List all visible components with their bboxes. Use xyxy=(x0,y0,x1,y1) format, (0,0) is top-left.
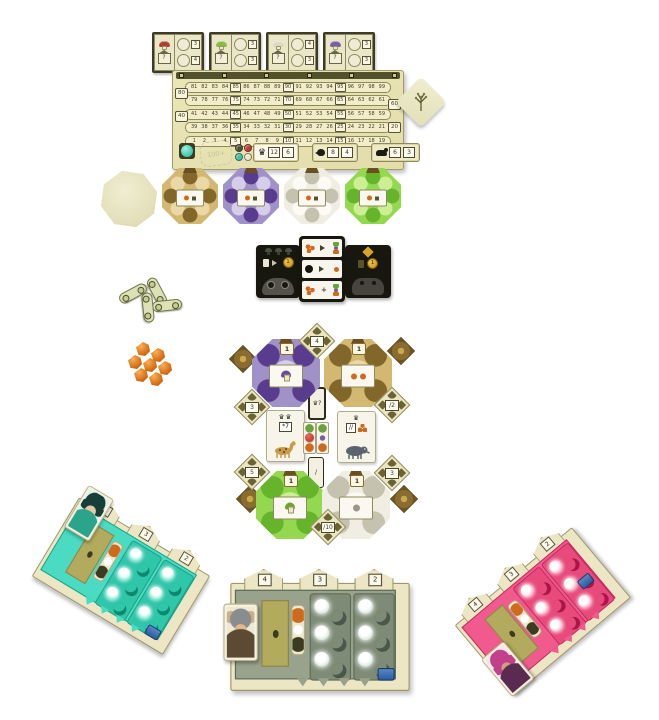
track-space: 57 xyxy=(356,110,366,119)
track-space: 55 xyxy=(335,110,346,119)
forest-tile-gold[interactable] xyxy=(162,168,218,224)
player-score-token[interactable] xyxy=(244,144,252,152)
peg xyxy=(392,73,397,78)
track-space: 44 xyxy=(220,110,230,119)
board-top-strip xyxy=(176,72,400,79)
crown-icon: ♛ xyxy=(258,148,266,158)
track-space: 85 xyxy=(230,83,241,92)
reward-row: // xyxy=(346,423,367,433)
scoring-value: 3 xyxy=(403,147,415,158)
goal-tile[interactable]: ?43 xyxy=(266,32,318,73)
track-space: 63 xyxy=(356,96,366,105)
glass-orb[interactable] xyxy=(147,584,164,601)
animal-mission-card[interactable]: ♛ // xyxy=(337,411,376,463)
goal-slot-circle xyxy=(177,38,190,51)
goal-slot-circle xyxy=(348,54,361,67)
goal-tiles-row: ?34?33?43?33 xyxy=(152,32,375,73)
colored-dots-icon xyxy=(333,284,339,296)
track-space: 35 xyxy=(230,123,241,132)
den-right-panel: 1 xyxy=(345,245,391,298)
glass-orb[interactable] xyxy=(547,558,565,576)
mystery-house-icon: ? xyxy=(329,53,342,64)
scoring-reference-panel: 84 xyxy=(312,143,358,162)
black-disc-icon xyxy=(305,265,313,273)
track-space: 45 xyxy=(230,110,241,119)
track-space: 56 xyxy=(346,110,356,119)
boar-illustration xyxy=(341,441,373,459)
track-space: 59 xyxy=(377,110,387,119)
tower-number: 3 xyxy=(313,574,327,587)
track-space: 66 xyxy=(324,96,334,105)
crown-icon: ♛ xyxy=(353,414,360,422)
gauge-strip xyxy=(291,605,305,656)
diamond-face: /10 xyxy=(316,515,340,539)
amber-crystal-token[interactable] xyxy=(158,361,172,375)
beetle-icon xyxy=(86,550,94,558)
tile-card xyxy=(273,497,307,520)
card-icon xyxy=(263,259,269,267)
glass-orb[interactable] xyxy=(358,599,373,614)
orange-dot-icon xyxy=(184,196,189,201)
track-space: 79 xyxy=(189,96,199,105)
goal-slot: 4 xyxy=(177,54,202,67)
orange-dot-icon xyxy=(334,267,339,272)
crescent-slot xyxy=(123,581,140,598)
tile-cap xyxy=(366,168,380,173)
track-space: 94 xyxy=(324,83,334,92)
goal-requirement: ? xyxy=(268,34,289,71)
glass-orb[interactable] xyxy=(314,599,329,614)
goal-slots: 33 xyxy=(346,34,373,71)
orange-dot-icon xyxy=(367,196,372,201)
coin-icon: 1 xyxy=(283,257,294,268)
goal-slot-circle xyxy=(291,54,304,67)
dark-square-icon xyxy=(314,196,318,200)
tile-cap xyxy=(183,168,197,173)
reward-row: *7 xyxy=(279,422,292,432)
goal-slot: 3 xyxy=(177,38,202,51)
track-space: 22 xyxy=(366,123,376,132)
mystery-house-icon: ? xyxy=(215,53,228,64)
glass-orb[interactable] xyxy=(136,604,153,621)
track-space: 89 xyxy=(272,83,282,92)
orange-dots-icon xyxy=(305,244,315,253)
den-reward-row: 1 xyxy=(358,258,378,269)
antler-chief-portrait xyxy=(227,607,255,658)
score-board: 8182838485868788899091929394959697989979… xyxy=(172,70,404,170)
goal-slot: 3 xyxy=(234,38,259,51)
track-space: 24 xyxy=(346,123,356,132)
track-space: 71 xyxy=(272,96,282,105)
goal-requirement: ? xyxy=(211,34,232,71)
gem-icon xyxy=(362,246,373,257)
goal-slot-circle xyxy=(234,54,247,67)
track-space: 88 xyxy=(262,83,272,92)
player-score-token[interactable] xyxy=(235,144,243,152)
track-space: 29 xyxy=(294,123,304,132)
track-space: 62 xyxy=(366,96,376,105)
diamond-value: /2 xyxy=(385,400,399,411)
glass-orb[interactable] xyxy=(104,584,121,601)
track-space: 52 xyxy=(304,110,314,119)
track-space: 41 xyxy=(189,110,199,119)
diamond-value: 4 xyxy=(310,336,324,347)
board-tooth xyxy=(297,678,309,686)
chain-link-token[interactable] xyxy=(152,298,183,312)
track-space: 28 xyxy=(304,123,314,132)
scoring-value: 6 xyxy=(389,147,401,158)
glass-orb[interactable] xyxy=(314,652,329,667)
plus-icon: + xyxy=(321,286,327,294)
score-track-row: 79787776757473727170696867666564636261 xyxy=(185,95,391,106)
orange-dots-icon xyxy=(351,373,357,379)
card-icon xyxy=(358,260,364,268)
orange-dots-icon xyxy=(358,424,367,432)
crescent-slot xyxy=(536,580,554,598)
peg xyxy=(264,73,269,78)
reward-tag: // xyxy=(346,423,356,433)
track-space: 72 xyxy=(262,96,272,105)
track-space: 34 xyxy=(241,123,251,132)
colored-dots-icon xyxy=(333,242,339,254)
sheep-icon xyxy=(376,150,387,156)
score-track: 8182838485868788899091929394959697989979… xyxy=(185,82,391,147)
board-tooth xyxy=(318,678,330,686)
gray-dot-icon xyxy=(353,505,360,512)
glass-orb[interactable] xyxy=(115,565,132,582)
track-space: 69 xyxy=(294,96,304,105)
arrow-icon xyxy=(272,260,280,266)
player-score-token[interactable] xyxy=(235,153,243,161)
glass-orb[interactable] xyxy=(127,546,144,563)
arrow-icon xyxy=(319,266,327,272)
track-space: 30 xyxy=(283,123,294,132)
forest-tile-row xyxy=(162,168,401,224)
goal-slots: 34 xyxy=(175,34,202,71)
track-space: 54 xyxy=(324,110,334,119)
diamond-value: 3 xyxy=(385,468,399,479)
slot-panel xyxy=(310,593,351,680)
tile-card xyxy=(341,365,375,388)
crown-icons: ♛♛ xyxy=(279,413,293,421)
goal-slot-value: 3 xyxy=(191,40,200,49)
glass-orb[interactable] xyxy=(561,575,579,593)
track-space: 58 xyxy=(366,110,376,119)
mushroom-silhouette-icon xyxy=(265,248,272,255)
goal-requirement: ? xyxy=(154,34,175,71)
track-space: 21 xyxy=(377,123,387,132)
glass-orb[interactable] xyxy=(533,599,551,617)
glass-orb[interactable] xyxy=(314,625,329,640)
tile-card xyxy=(359,190,387,207)
goal-slot-value: 3 xyxy=(248,56,257,65)
goal-slot-circle xyxy=(177,54,190,67)
crescent-slot xyxy=(155,600,172,617)
dark-square-icon xyxy=(192,196,196,200)
goal-tile[interactable]: ?33 xyxy=(209,32,261,73)
score-marker-disc[interactable] xyxy=(181,145,193,157)
crescent-slot xyxy=(332,610,347,625)
forest-tile-green[interactable] xyxy=(345,168,401,224)
tile-card xyxy=(339,497,373,520)
goal-slot-value: 3 xyxy=(305,56,314,65)
beetle-icon xyxy=(272,629,278,637)
owl-face xyxy=(262,278,294,295)
scoring-reference-panels: ♛1268463 xyxy=(253,143,420,162)
den-card-column: + xyxy=(299,236,345,302)
arrow-icon xyxy=(320,245,328,251)
scoring-reference-panel: 63 xyxy=(371,143,420,162)
diamond-value: /10 xyxy=(321,522,335,533)
goal-slots: 43 xyxy=(289,34,316,71)
track-space: 64 xyxy=(346,96,356,105)
track-space: 91 xyxy=(294,83,304,92)
track-space: 77 xyxy=(210,96,220,105)
coin-icon: 1 xyxy=(367,258,378,269)
track-space: 31 xyxy=(272,123,282,132)
crescent-slot xyxy=(375,637,390,652)
peg xyxy=(222,73,227,78)
goal-slot: 3 xyxy=(234,54,259,67)
track-space: 37 xyxy=(210,123,220,132)
hundred-plus-stamp: 100+ xyxy=(199,139,234,168)
goal-slot: 3 xyxy=(291,54,316,67)
board-body xyxy=(235,590,396,680)
track-space: 23 xyxy=(356,123,366,132)
track-space: 67 xyxy=(314,96,324,105)
goal-tile[interactable]: ?34 xyxy=(152,32,204,73)
crescent-slot xyxy=(332,663,347,678)
tower-number: 2 xyxy=(368,574,382,587)
red-round-token[interactable] xyxy=(305,433,314,442)
goal-slot-circle xyxy=(234,38,247,51)
value-diamond[interactable]: /2 xyxy=(374,387,411,424)
track-space: 76 xyxy=(220,96,230,105)
player-board-pink: 432 xyxy=(447,518,631,696)
tile-number-badge: 1 xyxy=(350,475,364,487)
track-space: 38 xyxy=(199,123,209,132)
crescent-slot xyxy=(550,597,568,615)
track-space: 27 xyxy=(314,123,324,132)
dark-square-icon xyxy=(375,196,379,200)
diamond-face: 3 xyxy=(380,461,404,485)
track-space: 83 xyxy=(210,83,220,92)
scoring-reference-panel: ♛126 xyxy=(253,143,299,162)
glass-orb[interactable] xyxy=(576,592,594,610)
beetle-icon xyxy=(508,630,516,638)
scoring-value: 6 xyxy=(282,147,294,158)
crescent-slot xyxy=(111,600,128,617)
track-space: 65 xyxy=(335,96,346,105)
den-left-panel: 1 xyxy=(256,245,300,298)
track-space: 95 xyxy=(335,83,346,92)
track-space: 96 xyxy=(346,83,356,92)
goal-slot-value: 3 xyxy=(248,40,257,49)
track-space: 49 xyxy=(272,110,282,119)
track-space: 93 xyxy=(314,83,324,92)
mystery-house-icon: ? xyxy=(158,53,171,64)
den-card[interactable]: + xyxy=(302,281,342,299)
track-space: 51 xyxy=(294,110,304,119)
goal-tile[interactable]: ?33 xyxy=(323,32,375,73)
track-space: 61 xyxy=(377,96,387,105)
orange-dots-icon xyxy=(305,286,315,295)
track-space: 36 xyxy=(220,123,230,132)
glass-orb[interactable] xyxy=(547,616,565,634)
forest-tile-white[interactable] xyxy=(284,168,340,224)
goal-slot-value: 4 xyxy=(191,56,200,65)
den-reward-row: 1 xyxy=(263,257,294,268)
track-space: 84 xyxy=(220,83,230,92)
purple-mushroom-icon xyxy=(330,41,341,50)
track-space: 74 xyxy=(241,96,251,105)
goal-slot-value: 3 xyxy=(362,40,371,49)
bonus-strip-card[interactable] xyxy=(316,422,329,454)
track-space: 32 xyxy=(262,123,272,132)
score-marker-frame xyxy=(179,143,195,159)
goal-slot: 3 xyxy=(348,54,373,67)
game-table: ?34?33?43?33 818283848586878889909192939… xyxy=(0,0,659,720)
amber-crystal-token[interactable] xyxy=(136,342,150,356)
player-score-token[interactable] xyxy=(244,153,252,161)
goal-slot-value: 3 xyxy=(362,56,371,65)
purple-mushroom-icon xyxy=(281,371,291,382)
diamond-face: 5 xyxy=(240,460,264,484)
score-track-row: 39383736353433323130292827262524232221 xyxy=(185,122,391,133)
track-space: 97 xyxy=(356,83,366,92)
orange-dot-icon xyxy=(245,196,250,201)
crescent-slot xyxy=(564,556,582,574)
diamond-value: 5 xyxy=(245,467,259,478)
tree-die[interactable] xyxy=(396,77,447,128)
bear-face xyxy=(352,278,384,295)
track-space: 26 xyxy=(324,123,334,132)
track-space: 86 xyxy=(241,83,251,92)
red-mushroom-icon xyxy=(159,41,170,50)
scoring-value: 8 xyxy=(327,147,339,158)
track-space: 48 xyxy=(262,110,272,119)
bird-icon xyxy=(317,149,325,156)
goal-slot-circle xyxy=(348,38,361,51)
player-board-teal: 432 xyxy=(32,487,217,655)
blank-octagon-tile[interactable] xyxy=(99,169,160,230)
track-space: 25 xyxy=(335,123,346,132)
track-space: 99 xyxy=(377,83,387,92)
goal-slots: 33 xyxy=(232,34,259,71)
tile-card xyxy=(176,190,204,207)
peg xyxy=(349,73,354,78)
player-token-cluster xyxy=(235,144,254,161)
peg xyxy=(307,73,312,78)
glass-orb[interactable] xyxy=(159,565,176,582)
diamond-face: 4 xyxy=(305,329,329,353)
tree-icon xyxy=(403,84,439,120)
mushroom-silhouette-icon xyxy=(275,248,282,255)
green-mushroom-icon xyxy=(285,503,295,514)
tile-card xyxy=(269,365,303,388)
crescent-slot xyxy=(332,637,347,652)
track-space: 43 xyxy=(210,110,220,119)
goal-slot: 3 xyxy=(348,38,373,51)
tile-card xyxy=(298,190,326,207)
track-space: 68 xyxy=(304,96,314,105)
tile-cap xyxy=(244,168,258,173)
peg xyxy=(179,73,184,78)
track-space: 78 xyxy=(199,96,209,105)
glass-orb[interactable] xyxy=(358,652,373,667)
track-space: 70 xyxy=(283,96,294,105)
study-panel xyxy=(261,600,289,667)
character-card[interactable] xyxy=(223,604,257,662)
den-card[interactable] xyxy=(302,239,342,257)
track-space: 81 xyxy=(189,83,199,92)
amber-crystal-token[interactable] xyxy=(149,372,163,386)
track-space: 92 xyxy=(304,83,314,92)
crescent-slot xyxy=(166,581,183,598)
diamond-face: /2 xyxy=(380,393,404,417)
score-track-row: 81828384858687888990919293949596979899 xyxy=(185,82,391,93)
tile-cap xyxy=(305,168,319,173)
board-tooth xyxy=(338,678,350,686)
track-space: 73 xyxy=(252,96,262,105)
goal-slot-value: 4 xyxy=(305,40,314,49)
tile-card xyxy=(237,190,265,207)
track-space: 75 xyxy=(230,96,241,105)
track-space: 39 xyxy=(189,123,199,132)
animal-mission-card[interactable]: ♛♛ *7 xyxy=(266,410,305,462)
forest-tile-purple[interactable] xyxy=(223,168,279,224)
board-tooth xyxy=(359,678,371,686)
track-space: 33 xyxy=(252,123,262,132)
diamond-value: 3 xyxy=(245,402,259,413)
track-space: 47 xyxy=(252,110,262,119)
orange-dot-icon xyxy=(306,196,311,201)
crescent-slot xyxy=(134,562,151,579)
den-card[interactable] xyxy=(302,260,342,278)
glass-orb[interactable] xyxy=(358,625,373,640)
player-board-olive: 432 xyxy=(230,569,409,691)
track-space: 87 xyxy=(252,83,262,92)
okapi-illustration xyxy=(270,440,302,458)
glass-orb[interactable] xyxy=(518,582,536,600)
reward-tag: *7 xyxy=(279,422,292,432)
amber-crystal-token[interactable] xyxy=(128,355,142,369)
white-mushroom-icon xyxy=(273,41,284,50)
diamond-face: 3 xyxy=(240,395,264,419)
goal-slot: 4 xyxy=(291,38,316,51)
blue-chip[interactable] xyxy=(378,668,395,681)
scoring-value: 12 xyxy=(268,147,280,158)
track-space: 90 xyxy=(283,83,294,92)
track-space: 50 xyxy=(283,110,294,119)
track-space: 98 xyxy=(366,83,376,92)
dark-square-icon xyxy=(253,196,257,200)
score-track-row: 41424344454647484950515253545556575859 xyxy=(185,109,391,120)
mystery-house-icon: ? xyxy=(272,53,285,64)
tile-number-badge: 1 xyxy=(280,343,294,355)
crescent-slot xyxy=(375,610,390,625)
tile-number-badge: 1 xyxy=(352,343,366,355)
track-space: 82 xyxy=(199,83,209,92)
scoring-value: 4 xyxy=(341,147,353,158)
goal-slot-circle xyxy=(291,38,304,51)
green-mushroom-icon xyxy=(216,41,227,50)
mushroom-icons-row xyxy=(265,248,292,255)
tower-number: 4 xyxy=(258,574,272,587)
track-space: 53 xyxy=(314,110,324,119)
tile-number-badge: 1 xyxy=(284,475,298,487)
track-space: 46 xyxy=(241,110,251,119)
